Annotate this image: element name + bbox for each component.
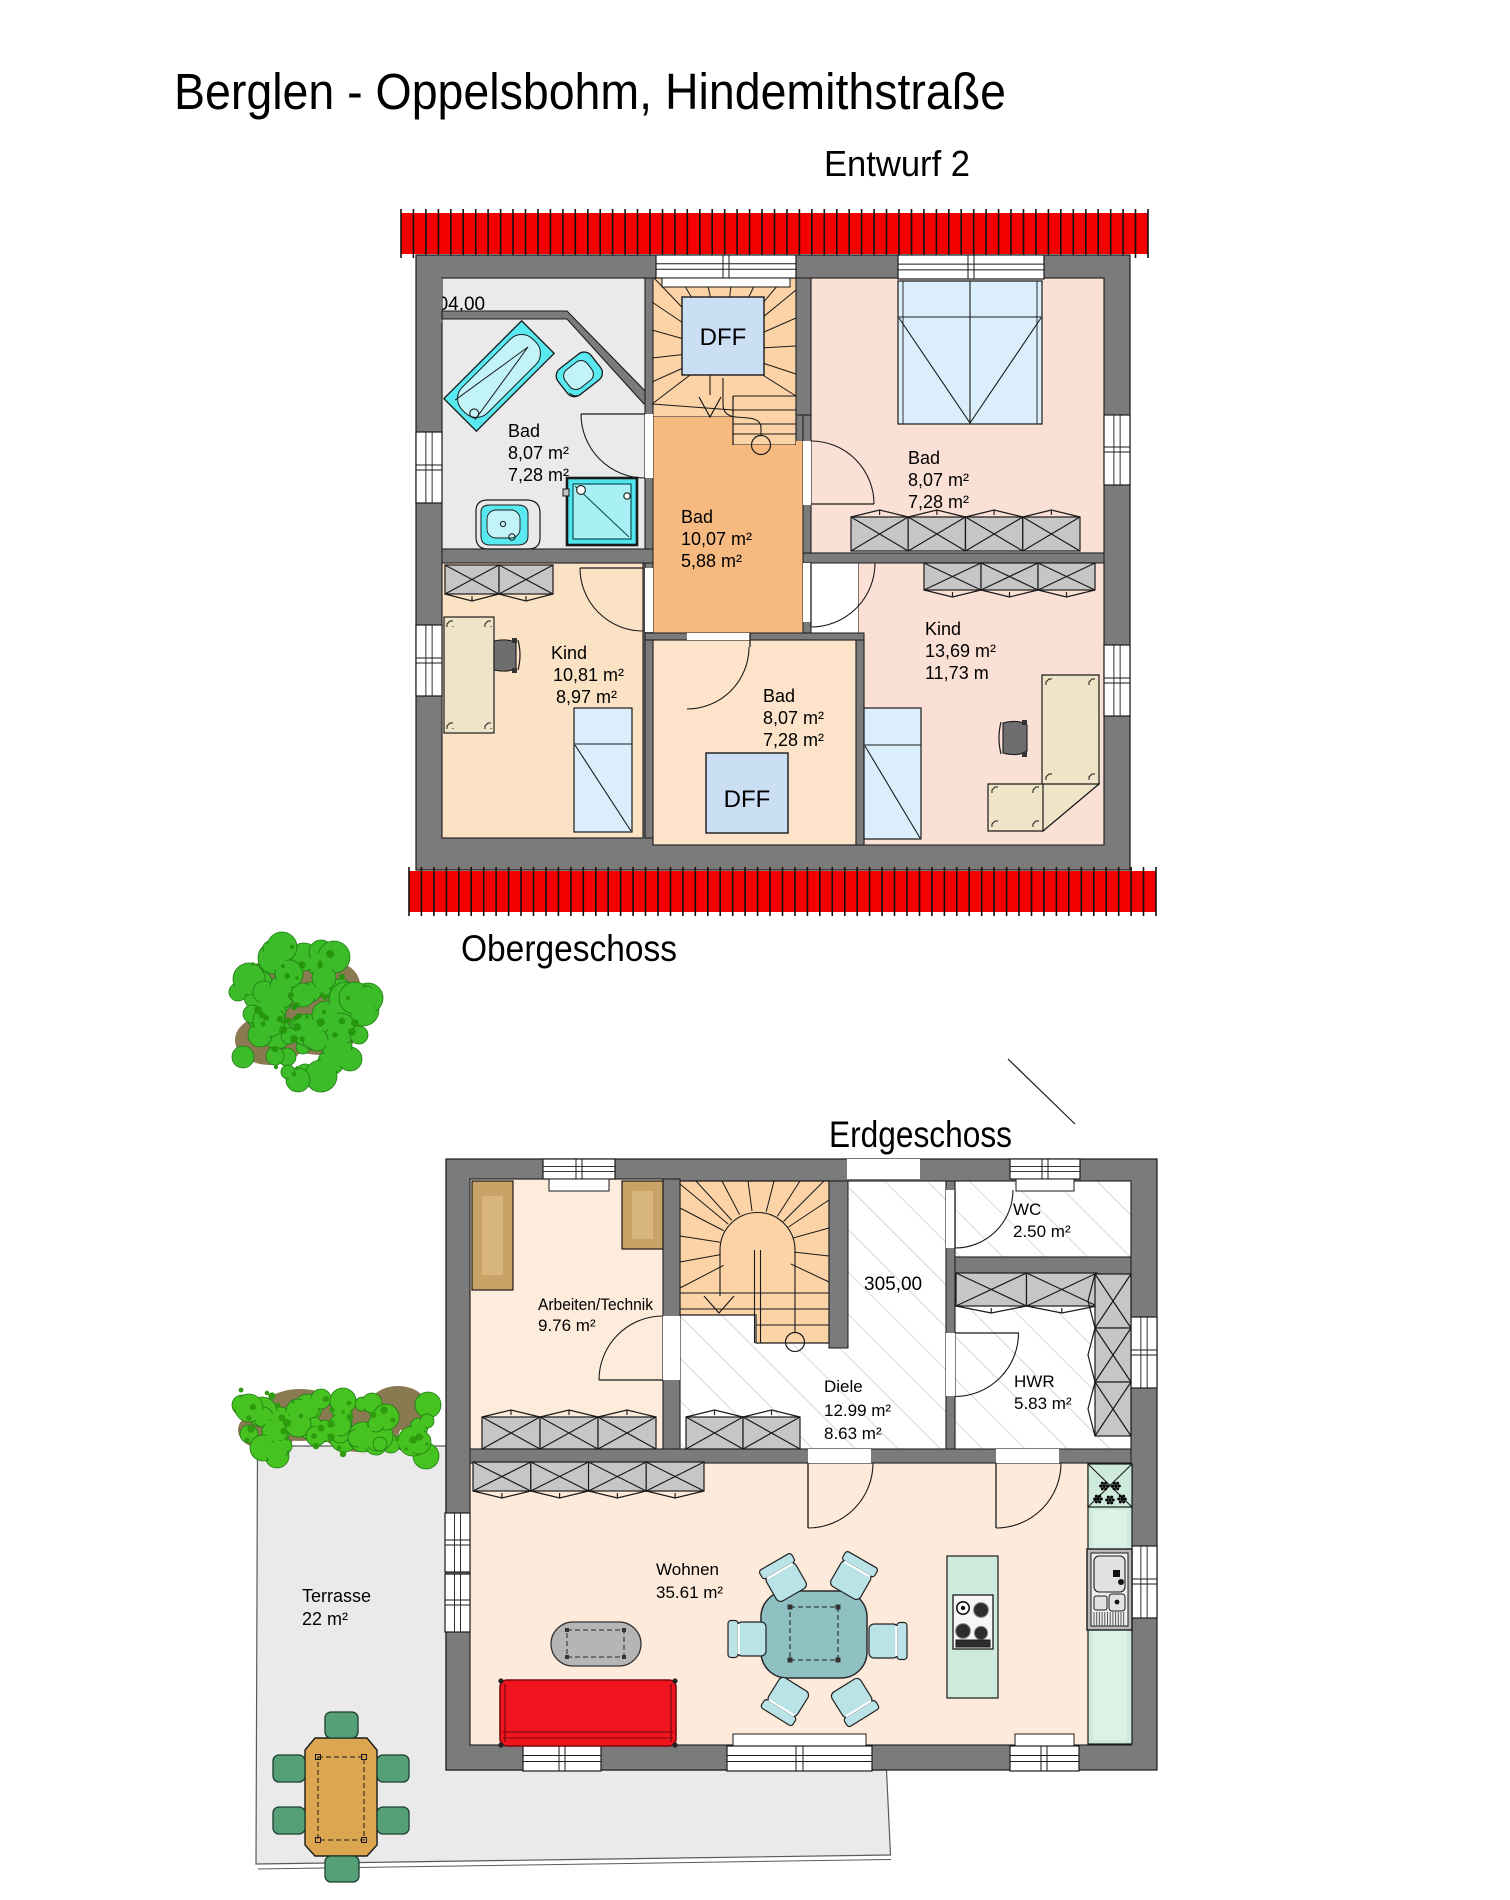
svg-text:WC: WC <box>1013 1200 1041 1219</box>
svg-text:Obergeschoss: Obergeschoss <box>461 928 677 969</box>
svg-text:Kind: Kind <box>925 619 961 639</box>
svg-text:5.83 m²: 5.83 m² <box>1014 1394 1072 1413</box>
svg-text:8,07 m²: 8,07 m² <box>508 443 569 463</box>
svg-text:Terrasse: Terrasse <box>302 1586 371 1606</box>
svg-text:8,07 m²: 8,07 m² <box>763 708 824 728</box>
svg-text:10,07 m²: 10,07 m² <box>681 529 752 549</box>
svg-text:22 m²: 22 m² <box>302 1609 348 1629</box>
svg-text:Arbeiten/Technik: Arbeiten/Technik <box>538 1295 653 1314</box>
svg-text:Bad: Bad <box>681 507 713 527</box>
svg-text:35.61 m²: 35.61 m² <box>656 1583 723 1602</box>
svg-text:8,97 m²: 8,97 m² <box>556 687 617 707</box>
svg-text:7,28 m²: 7,28 m² <box>908 492 969 512</box>
svg-text:Bad: Bad <box>763 686 795 706</box>
svg-text:HWR: HWR <box>1014 1372 1055 1391</box>
svg-text:13,69 m²: 13,69 m² <box>925 641 996 661</box>
svg-text:DFF: DFF <box>700 324 747 351</box>
svg-text:8,07 m²: 8,07 m² <box>908 470 969 490</box>
svg-text:Berglen - Oppelsbohm, Hindemit: Berglen - Oppelsbohm, Hindemithstraße <box>174 63 1006 120</box>
svg-text:Wohnen: Wohnen <box>656 1560 719 1579</box>
svg-text:12.99 m²: 12.99 m² <box>824 1401 891 1420</box>
svg-text:7,28 m²: 7,28 m² <box>508 465 569 485</box>
svg-text:5,88 m²: 5,88 m² <box>681 551 742 571</box>
svg-text:8.63 m²: 8.63 m² <box>824 1424 882 1443</box>
svg-text:Bad: Bad <box>908 448 940 468</box>
svg-text:Entwurf 2: Entwurf 2 <box>824 143 970 184</box>
svg-text:Erdgeschoss: Erdgeschoss <box>829 1114 1012 1155</box>
svg-text:10,81 m²: 10,81 m² <box>553 665 624 685</box>
svg-text:Diele: Diele <box>824 1377 863 1396</box>
svg-text:2.50 m²: 2.50 m² <box>1013 1222 1071 1241</box>
svg-text:DFF: DFF <box>724 786 771 813</box>
svg-text:7,28 m²: 7,28 m² <box>763 730 824 750</box>
svg-text:305,00: 305,00 <box>864 1274 922 1295</box>
svg-text:Bad: Bad <box>508 421 540 441</box>
svg-text:Kind: Kind <box>551 643 587 663</box>
svg-text:9.76 m²: 9.76 m² <box>538 1316 596 1335</box>
svg-text:11,73 m: 11,73 m <box>925 663 989 683</box>
